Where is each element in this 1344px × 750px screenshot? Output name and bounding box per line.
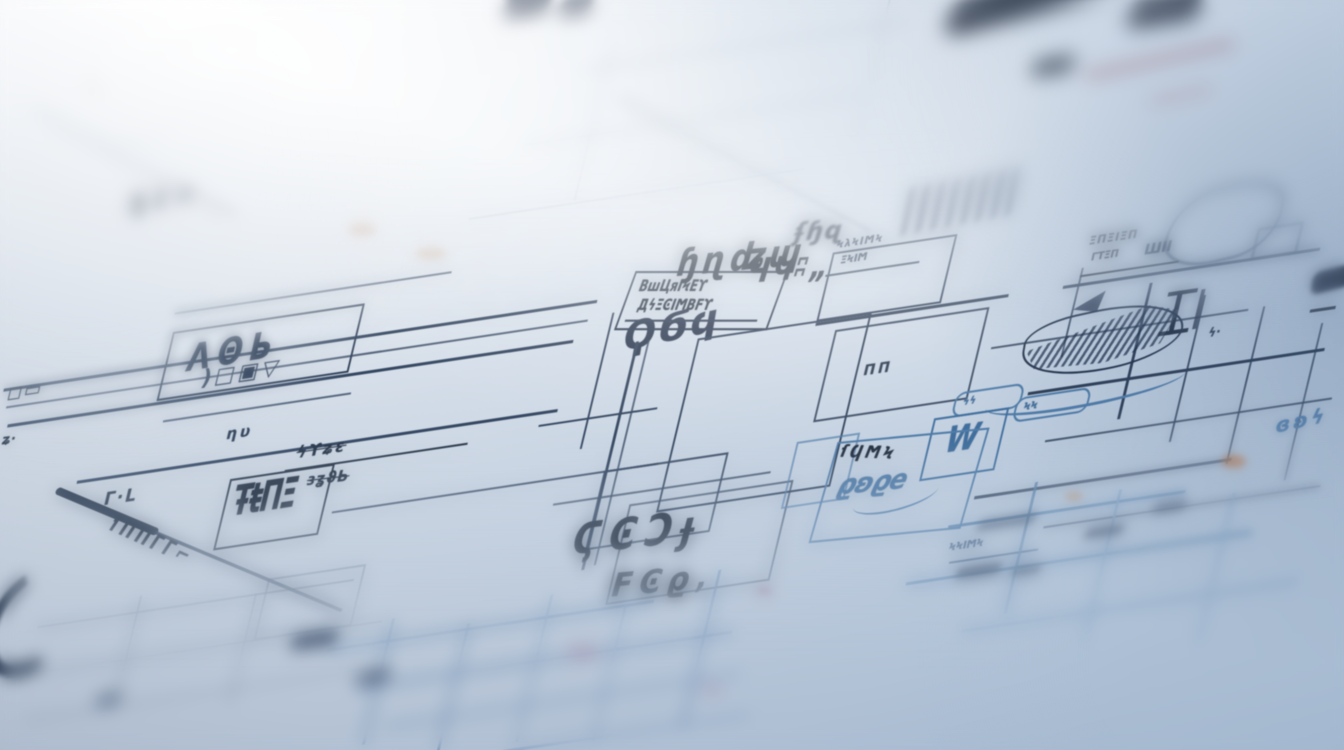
ink-line (434, 713, 751, 750)
orange-smudge (1065, 492, 1083, 501)
dash-mark (1152, 500, 1188, 513)
blueprint-photo: ◻◻ɪ ɧԷո )□▣▽ ◻▭ ʑ· ΛΘЬ ηυ Γ·L ϟϒʑε ɜʓϑЬ … (0, 0, 1344, 750)
ink-box (253, 564, 366, 641)
ink-line (580, 313, 615, 450)
scribble-text: ϟϒʑε (295, 437, 349, 461)
pink-smudge (700, 684, 724, 695)
ink-smear (502, 0, 555, 21)
hatch-comb (900, 167, 1022, 236)
ink-line (1080, 261, 1179, 278)
scribble-text: ŦŧΠΞ (228, 472, 300, 524)
schematic-drawing-layer: ◻◻ɪ ɧԷո )□▣▽ ◻▭ ʑ· ΛΘЬ ηυ Γ·L ϟϒʑε ɜʓϑЬ … (0, 0, 1344, 750)
ink-line (856, 0, 894, 137)
dash-mark (976, 512, 1038, 531)
ink-line (1226, 306, 1266, 464)
annotation-text: ΞΠΞΙΞΠ (1088, 228, 1140, 247)
ink-line (1004, 482, 1038, 613)
scribble-text: ſϤϺϞ (838, 443, 900, 462)
ink-line (117, 595, 142, 692)
scribble-text: ɞʚϟ (1274, 404, 1329, 436)
scribble-text: ◻▭ (5, 379, 45, 403)
ink-smear (1125, 0, 1205, 30)
ink-line (469, 168, 806, 220)
ink-smear (1029, 53, 1077, 78)
ink-smear (1310, 263, 1344, 296)
dash-mark (955, 563, 1003, 579)
scribble-text: ϜϾϱ‚ (607, 561, 720, 604)
ink-line (24, 669, 361, 721)
orange-smudge (415, 248, 447, 259)
red-smudge (757, 588, 772, 595)
ink-line (592, 604, 628, 741)
ink-line (974, 458, 1232, 499)
dash-mark (1084, 524, 1126, 538)
scribble-text: ʑ· (0, 432, 17, 448)
ink-smear (557, 0, 596, 20)
scribble-text: ДϟΞϾΙϺΒϜϒ (636, 297, 715, 312)
scribble-text: ЧԿʭ„ (742, 249, 837, 289)
ink-line (228, 593, 257, 707)
orange-smudge (348, 224, 376, 235)
ink-line (625, 320, 758, 322)
scribble-text: Γ·L (102, 487, 140, 510)
annotation-text: ΓΤΞΠ (1090, 249, 1120, 264)
scribble-text: ϞϞ (1022, 401, 1038, 414)
ink-line (1196, 493, 1235, 646)
ink-line (1284, 323, 1324, 481)
orange-smudge (1222, 455, 1246, 468)
scribble-text: ϟϟ (961, 396, 977, 408)
orange-smudge (86, 82, 102, 91)
ink-line (581, 21, 908, 72)
ink-line (1083, 489, 1122, 641)
scribble-text: ſΠΠΓΓ⌐ (105, 514, 198, 569)
pencil-curve (128, 25, 272, 109)
ink-line (1309, 306, 1335, 313)
scribble-text: ɧԷո (126, 178, 201, 219)
annotation-text: ϞϞΙϺϞ (947, 538, 984, 554)
scribble-text: ηυ (225, 423, 255, 443)
pink-smudge (566, 646, 600, 659)
ink-line (327, 600, 654, 651)
scribble-text: ϟ· (1207, 325, 1222, 339)
ink-smear (944, 0, 1146, 40)
ink-line (174, 271, 451, 314)
ink-line (435, 623, 470, 750)
